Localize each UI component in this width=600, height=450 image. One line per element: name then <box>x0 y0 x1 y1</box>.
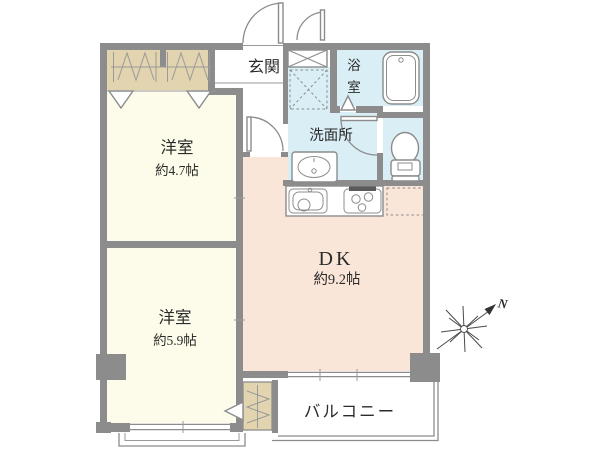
western-room-1-size: 約4.7帖 <box>155 163 199 178</box>
entrance-label: 玄関 <box>248 58 280 76</box>
wall-segment <box>281 152 288 157</box>
wall-segment <box>423 43 430 357</box>
wall-segment <box>236 92 243 432</box>
western-room-2-label: 洋室 <box>159 308 192 327</box>
balcony-label: バルコニー <box>304 402 396 421</box>
floor-plan: 玄関 浴 室 洗面所 洋室 約4.7帖 洋室 約5.9帖 DK 約9.2帖 バル… <box>0 0 600 450</box>
dk-label: DK <box>319 248 354 270</box>
bathroom-label-2: 室 <box>347 79 361 95</box>
wall-segment <box>330 106 340 113</box>
stove-grill <box>349 187 376 192</box>
toilet-door-leaf <box>341 117 377 121</box>
dk-size: 約9.2帖 <box>313 271 360 288</box>
meterbox-door-leaf <box>321 10 325 40</box>
wall-segment <box>96 422 111 433</box>
hall-dk-door-leaf <box>247 117 251 151</box>
entrance-door-leaf <box>279 3 284 43</box>
wall-segment <box>272 380 278 433</box>
wall-segment <box>283 43 288 124</box>
western-room-1-label: 洋室 <box>161 138 194 157</box>
wall-segment <box>100 43 243 50</box>
toilet-tank <box>391 160 420 176</box>
wall-segment <box>283 43 430 50</box>
wall-segment <box>230 423 243 432</box>
compass-center <box>461 326 468 333</box>
wall-segment <box>100 241 243 248</box>
closet-divider <box>160 43 166 67</box>
wall-segment <box>241 152 250 157</box>
wall-segment <box>377 153 383 184</box>
wall-segment <box>241 371 288 378</box>
pillar <box>410 353 440 382</box>
wall-segment <box>356 106 383 113</box>
western-rooms-floor <box>107 46 236 423</box>
washroom-label: 洗面所 <box>309 127 353 144</box>
toilet-base <box>392 176 419 181</box>
wall-segment <box>377 112 427 118</box>
bathtub <box>383 52 419 104</box>
wall-segment <box>330 43 337 112</box>
bathroom-label-1: 浴 <box>347 58 361 73</box>
toilet-bowl <box>392 133 419 164</box>
pillar <box>96 354 126 380</box>
toilet-fixtures <box>391 133 420 182</box>
washroom-fixtures <box>292 152 337 182</box>
western-room-2-size: 約5.9帖 <box>153 333 197 348</box>
